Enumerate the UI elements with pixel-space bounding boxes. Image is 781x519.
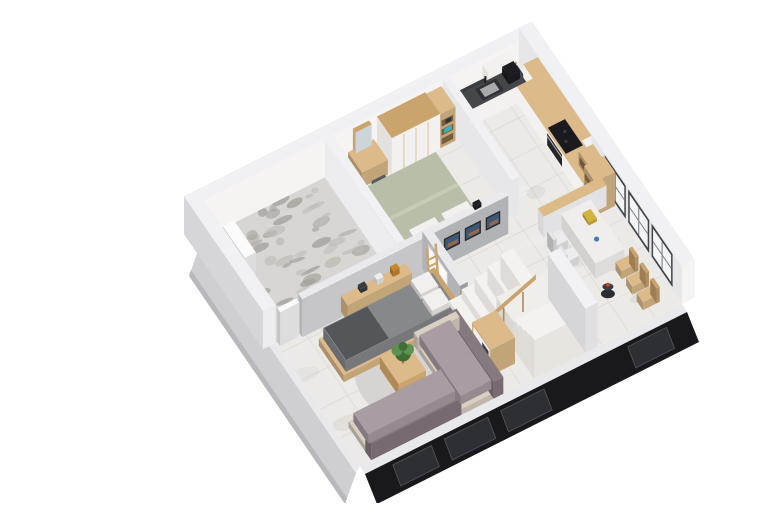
stair-upper-step-3-top [529,307,586,340]
console-decor-white-side [374,276,377,286]
stair-step-1-side [462,289,484,330]
vein [351,408,366,420]
vein [510,79,555,105]
wall-door-side [422,231,459,324]
vein [344,256,368,270]
terrace-blob [273,253,295,269]
terrace-blob [271,193,291,208]
tile-line [243,133,565,295]
sofa-main-back-side [365,435,371,461]
sofa-chaise-base-top [414,318,504,409]
stair-step-4-top [500,248,535,286]
sofa-cushion-front [440,351,471,375]
window-frame-2 [652,224,673,288]
wood-chair-seat-1-front [632,279,647,294]
wall-door-top [422,227,468,286]
picture-frame-1 [465,220,481,241]
terrace-blob [241,269,255,279]
dark-decor [446,117,452,124]
bed2-frame-front [344,317,460,382]
window-mullion-0 [615,173,616,202]
white-chair-back-0-top [547,230,557,241]
vein [283,363,321,388]
wood-chair-seat-0-side [616,262,622,279]
bed1-pillow-top [441,201,473,223]
terrace-door-leaf-top [277,298,299,312]
sofa-chaise-back-side [447,313,494,398]
terrace-blob [294,249,309,259]
tall-shelf-inset-2 [585,173,594,192]
wall-frames-front [434,196,508,271]
mirror-top [353,121,372,133]
console-decor-amber-top [390,263,400,271]
terrace-front-wall-top [184,190,276,312]
accent-stool-red [606,283,610,287]
bed2-pillow-side [422,297,432,316]
base-counter-side [517,87,583,201]
floor-tile-grid [224,90,663,453]
terrace-blob [272,213,294,228]
white-chair-back-1-front [564,255,567,272]
wall-back-left-side [184,196,191,244]
window-mullion-2 [662,241,663,270]
facade-window-3 [393,446,440,486]
stair-upper-step-3-side [529,333,534,379]
terrace-blob [264,206,281,221]
window-bar-1 [630,207,648,235]
upper-cabinets-front [577,136,592,156]
tall-shelf-inset-1 [585,182,594,201]
rug [354,328,458,422]
plant-foliage [395,345,411,361]
wall-camera-top [473,199,482,206]
terrace-blob [285,298,305,310]
ladder-rail [436,244,438,280]
picture-frame-0 [486,211,501,231]
sofa-main-base-side [349,421,372,460]
sofa-chaise-base-side [414,339,462,415]
wood-chair-back-2-front [657,287,660,304]
wall-terrace-divider-front [397,240,405,282]
wardrobe-side [377,117,392,175]
wood-chair-back-2-side [650,279,656,303]
sink-counter-top [459,65,528,110]
wall-camera-front [475,203,481,210]
stair-upper-step-2-front [529,310,581,372]
sofa-cushion-top [440,351,491,396]
white-balustrade-front [585,302,597,352]
terrace-blob [357,239,366,246]
white-chair-seat-0-top [549,231,568,247]
window-bar-2 [653,241,671,269]
terrace-blob [352,244,364,254]
wood-chair-back-0-top [629,247,639,258]
vein [568,251,595,270]
terrace-blob [275,236,286,246]
vein [423,216,453,231]
sink-counter-side [459,94,470,127]
terrace-blob [304,193,313,199]
sofa-chaise-back-front [494,377,504,399]
stair-step-3-side [488,266,510,317]
facade-window-0 [628,327,675,368]
terrace-blob [294,285,309,295]
terrace-blob [249,238,263,248]
vein [607,283,650,302]
runner-dot [390,303,392,305]
base-counter-front [583,173,604,201]
bed1-pillow-front [415,226,441,245]
bed2-frame-side [319,339,344,383]
terrace-blob [337,227,357,238]
tall-shelf-top [584,156,615,182]
stair-step-1-front [484,315,497,331]
bedroom-2 [319,244,460,383]
oven-door [547,133,562,167]
coffee-table-side [380,357,399,396]
wall-kitchen-divider-side [443,80,512,218]
sofa-armrest-side [414,332,418,351]
terrace-floor [204,177,397,343]
console-table-top [341,263,412,305]
mirror-front [356,124,372,153]
floor [204,76,682,466]
terrace-door-leaf-front [280,303,299,347]
terrace-door-leaf-side [277,308,280,346]
wood-chair-seat-1-side [626,278,632,295]
tile-line [311,184,467,412]
stair-step-2-side [475,278,497,324]
sofa-cushion-top [353,398,397,434]
staircase [449,248,598,380]
left-facade [189,245,356,503]
bed2-pillow-front [421,286,439,300]
terrace-blob [305,303,319,315]
bed2-headboard-front [453,304,459,327]
bed2-duvet-side [323,328,346,372]
dining [538,177,660,310]
tall-shelf-front [595,172,615,216]
table-decor-yellow-side [583,213,589,226]
upper-cabinets-side [523,64,577,156]
tile-line [419,130,575,358]
wall-terrace-divider-side [325,139,397,282]
tile-line [499,90,655,318]
sofa-cushion-front [426,391,455,415]
console-decor-white-front [377,277,384,285]
terrace-slab [204,177,397,343]
stair-step-0-side [449,301,471,337]
terrace-blob [268,204,278,213]
wall-terrace-divider-top [325,135,405,244]
wood-chair-seat-0-top [616,255,637,271]
dressing-table-side [348,152,362,188]
teal-decor [444,125,452,133]
runner-dot [353,322,355,324]
wall-frames-top [430,190,508,233]
oven-handle [547,135,562,159]
sofa-cushion-side [382,398,397,429]
sofa-cushion-side [419,335,440,375]
console-decor-dark-top [358,281,368,289]
bed1-pillow-front [447,210,473,229]
bed1-duvet-front [408,215,479,263]
vein [401,300,439,325]
accent-stool-top [602,283,613,290]
runner-dot [381,308,383,310]
wood-chair-back-1-top [640,262,650,273]
terrace-blob [309,199,326,210]
bed2-pillow-top [411,271,439,294]
dressing-table-front [362,160,388,188]
table-decor-yellow-front [589,218,597,226]
terrace-blob [285,195,304,210]
coffee-machine-side [502,67,509,85]
shelf-unit-top [472,310,515,350]
left-facade-shadow [189,270,347,503]
white-chair-seat-0-front [555,240,568,255]
stair-upper-step-1-top [519,298,576,331]
terrace-front-wall-side [184,196,263,349]
bed1-pillow-side [441,214,447,229]
vein [554,294,594,316]
sofa-main-back-front [371,398,461,460]
runner-dot [409,293,411,295]
stair-landing-side [496,297,514,350]
base-counter-top [517,76,604,183]
floating-shelf-inset [580,157,587,175]
terrace-blob [311,187,320,194]
sofa-cushion-front [368,420,397,444]
white-chair-seat-1-side [560,253,566,270]
terrace-blob [322,242,339,256]
picture-art-accent-2 [448,239,458,248]
terrace-blob [301,202,319,216]
floating-shelf-front [588,158,602,179]
display-shelf-top [425,86,455,115]
stair-step-1-top [462,283,497,321]
bed2-headboard-side [428,271,453,328]
picture-art-2 [445,233,459,250]
console-table-front [348,273,412,321]
terrace-blob [323,254,343,270]
wall-bedroom2-front [302,236,428,337]
vein [393,391,414,408]
wall-kitchen-divider-top [443,76,519,180]
terrace-blob [237,273,254,284]
wall-back-left-top [184,28,526,207]
bed1-duvet-top [365,152,479,250]
white-chair-back-1-side [558,247,564,271]
console-decor-amber-side [390,267,393,278]
runner-dot [400,298,402,300]
wall-bedroom2-top [298,230,428,299]
terrace-blob [245,228,259,241]
tile-line [321,247,643,409]
stair-upper-step-2-top [524,303,581,336]
wall-frames-side [430,227,434,271]
ladder-rung [429,269,438,273]
white-chair-seat-1-top [560,247,579,263]
terrace-blob [304,301,319,312]
terrace-blob [322,211,332,218]
wall-back-right-front [682,260,695,305]
window-frame-1 [628,189,649,253]
tile-line [338,171,494,399]
stair-step-2-top [475,271,510,309]
bed1-fold [386,183,459,222]
terrace-blob [316,289,338,306]
stair-upper-step-2-side [524,329,529,372]
bed1-frame-front [407,228,484,275]
shelf-cubby [482,342,488,359]
table-decor-yellow-top [583,209,597,222]
stair-step-0-top [449,294,484,332]
sofa-cushion-front [397,405,426,429]
floating-shelf-side [579,151,588,179]
sofa-cushion-side [440,366,460,405]
terrace-blob [256,206,269,218]
white-door [429,245,448,305]
stool-side [372,181,378,198]
sofa-cushion-front [461,380,492,404]
bed1-duvet-side [365,188,408,263]
tile-line [446,117,602,345]
terrace-front-wall-front [263,305,276,350]
vein [442,107,460,125]
terrace-divider [223,135,405,291]
stair-upper-step-0-top [514,294,571,327]
terrace-blob [341,246,361,256]
terrace-blob [310,235,332,251]
terrace-blob [252,299,270,313]
tile-line [392,144,548,372]
terrace-blob [295,268,307,277]
sofa-cushion-top [411,369,455,405]
peninsula-side [538,208,544,237]
sofa-main-back-top [365,389,461,443]
terrace-blob [262,229,278,239]
terrace-blob [311,214,332,230]
wardrobe-top [377,92,440,138]
white-chair-back-1-top [558,246,568,257]
runner-dot [362,317,364,319]
white-chair-back-0-side [547,231,553,255]
picture-frame-2 [444,231,460,252]
wall-back-right-side [519,28,682,304]
wood-chair-back-2-top [650,278,660,289]
wall-kitchen-divider-front [512,176,519,218]
plant-foliage [403,344,414,355]
bed1-frame-side [360,199,407,275]
breakfast-table-front [595,249,624,279]
window-mullion-1 [638,207,639,236]
bed2-headboard-top [428,267,459,307]
wood-chair-back-1-side [640,264,646,288]
terrace-white-panel-top [223,221,256,259]
terrace-blob [231,273,253,286]
bed2-throw [324,307,389,361]
terrace-blob [350,243,371,259]
sofa-armrest-front [418,317,460,351]
runner-dot [418,289,420,291]
console-decor-white-top [374,272,384,280]
tile-line [365,157,521,385]
bed2-pillow-front [432,302,450,316]
wood-chair-seat-2-side [637,293,643,310]
mirror-side [353,129,356,154]
stair-landing-top [496,271,566,323]
bed2-pillow-top [422,288,450,311]
vein [552,245,575,257]
console-table-side [341,296,348,322]
window-glass-1 [630,195,648,248]
shelf-unit-front [491,338,515,376]
stool-front [378,184,391,199]
tile-line [263,162,585,324]
picture-art-accent-0 [490,219,499,227]
front-facade-top [360,304,687,474]
coffee-machine-front [509,71,520,85]
stair-upper-step-3-front [534,314,586,379]
coffee-machine-top [502,61,520,77]
white-balustrade-top [548,248,598,309]
terrace-blob [369,279,380,291]
facade-window-2 [444,417,496,460]
shelf-notch-2 [442,115,454,127]
peninsula-front [544,185,607,238]
runner-dot [428,284,430,286]
window-frame-0 [605,155,626,219]
vein [461,344,489,364]
stair-step-2-front [496,303,509,324]
terrace-blob [300,264,321,277]
tile-line [224,105,546,267]
facade-window-1 [501,389,552,432]
window-glass-0 [606,160,624,213]
plant-foliage [391,345,402,356]
ladder-rung [429,262,438,266]
stair-step-3-front [509,292,522,318]
wall-back-right-top [519,21,695,266]
tile-line [285,198,441,426]
white-balustrade-side [548,254,585,353]
vein [592,186,617,203]
bed1-pillow-top [409,217,441,239]
terrace-blob [301,271,322,286]
vein [605,257,630,273]
shelf-notch-1 [442,124,454,136]
sofa-cushion-top [382,384,426,420]
vein [264,256,282,267]
vein [341,351,383,368]
vein [525,183,547,201]
wall-back-left-front [191,38,526,245]
terrace-blob [263,223,287,239]
terrace-blob [311,226,319,233]
floorplan-3d-render [40,16,781,503]
stool-top [372,174,391,190]
coffee-table-top [380,343,426,384]
terrace-blob [263,254,278,267]
vein [331,411,365,434]
white-chair-back-0-front [553,239,556,256]
terrace-pattern [223,187,380,322]
wall-cabinet-top [483,51,516,73]
vein [500,208,528,225]
bed2-frame-top [319,280,460,375]
vein [517,232,553,251]
